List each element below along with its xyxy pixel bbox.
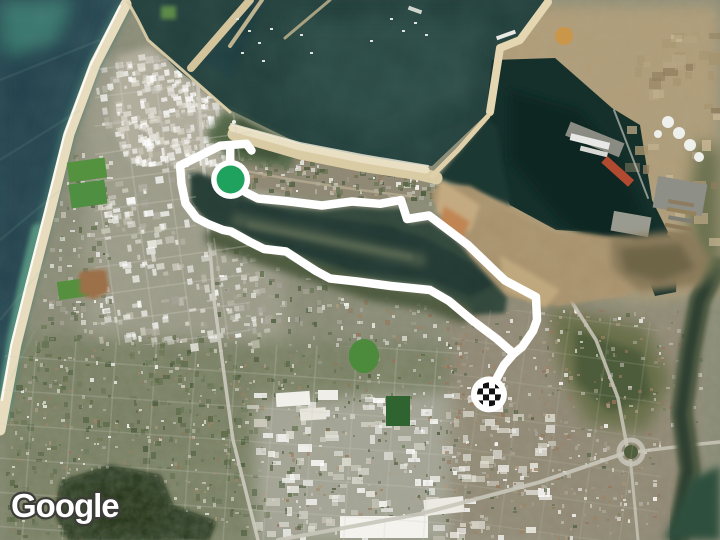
svg-text:Google: Google xyxy=(11,487,119,524)
